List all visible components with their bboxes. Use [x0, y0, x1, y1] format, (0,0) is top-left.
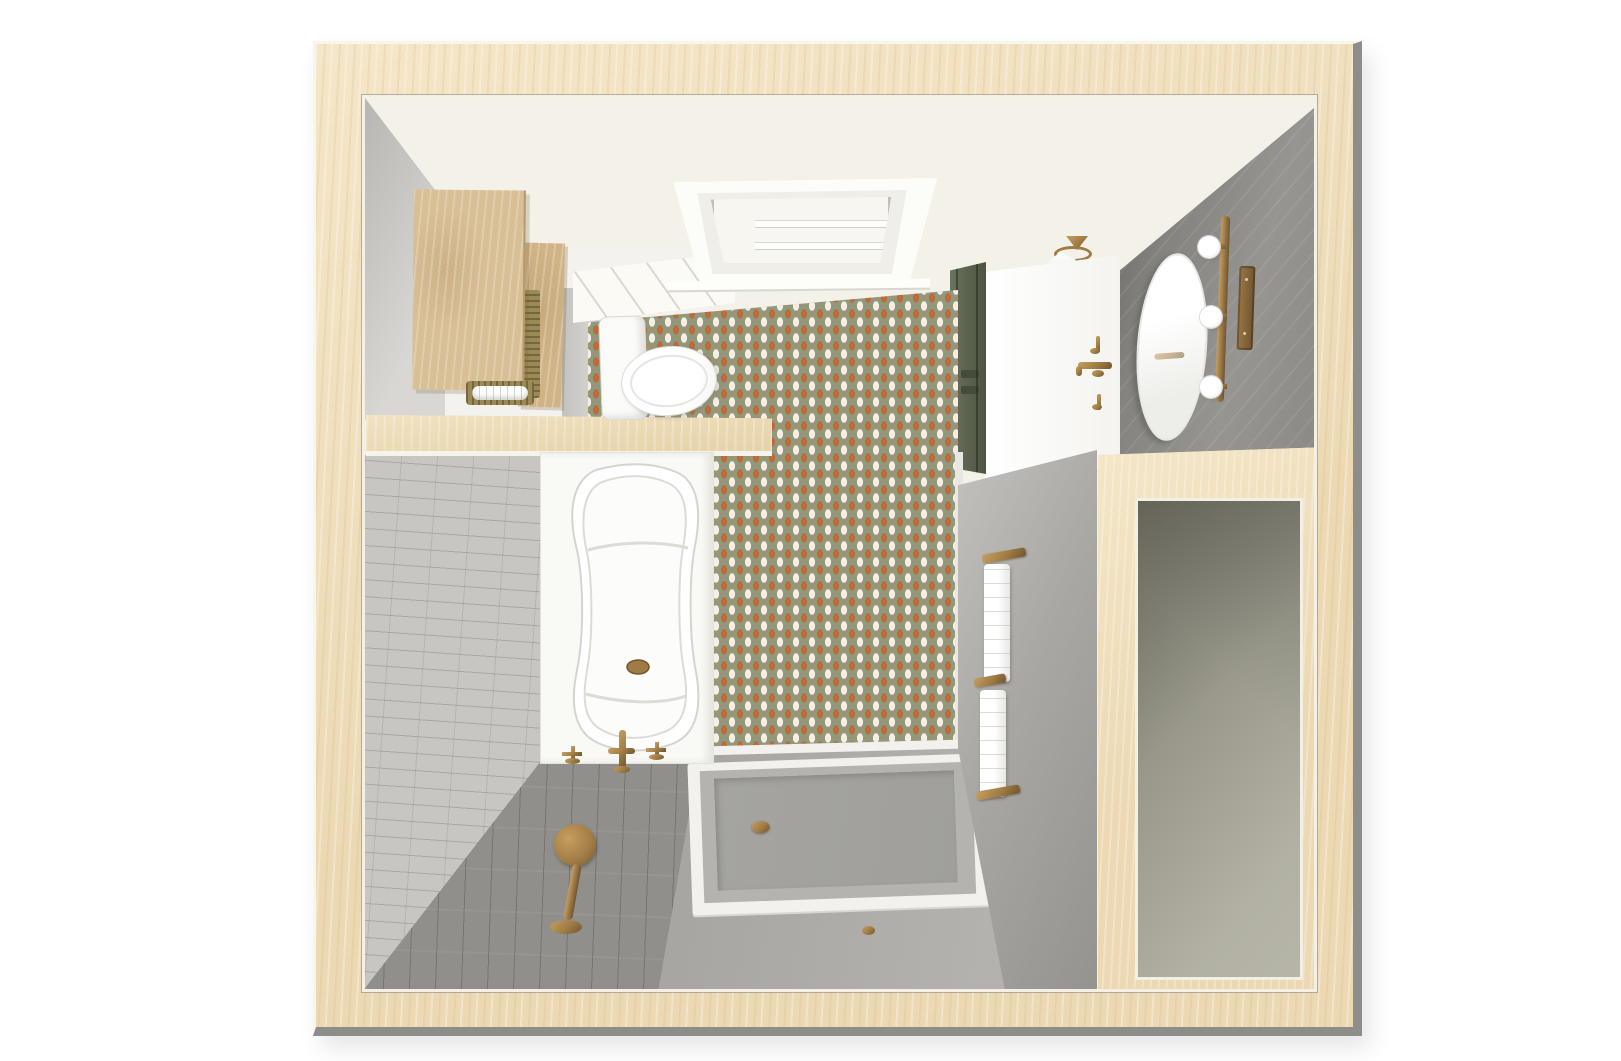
- vanity-faucet: [1076, 336, 1120, 422]
- faucet-escutcheon: [1092, 404, 1102, 410]
- faucet-escutcheon: [1090, 348, 1100, 354]
- tub-cross-handle: [562, 746, 584, 766]
- skylight: [665, 178, 940, 290]
- wall-cabinet-front: [412, 190, 526, 391]
- faucet-spout-tip: [1076, 366, 1082, 376]
- handle-bar: [562, 752, 582, 756]
- filler-base: [614, 766, 630, 773]
- rolled-towel: [472, 386, 528, 400]
- handle-base: [649, 754, 664, 760]
- handle-bar: [646, 748, 666, 752]
- plate-screw: [1245, 278, 1248, 281]
- vanity-light-bar: [1196, 214, 1258, 410]
- shower-pan: [687, 752, 1010, 915]
- bathtub: [560, 462, 710, 754]
- globe-bulb: [1200, 376, 1222, 398]
- hand-shower-base: [550, 920, 582, 934]
- floor-drain-icon: [862, 926, 875, 935]
- hand-shower-head: [554, 824, 596, 866]
- tub-cross-handle: [646, 742, 668, 762]
- bathroom-floorplan-render: [0, 0, 1621, 1061]
- faucet-spout-icon: [1078, 362, 1112, 369]
- hanging-towel: [984, 564, 1010, 682]
- shower-pan-recess: [714, 770, 958, 890]
- tub-filler-spout: [608, 730, 636, 776]
- bathroom-room: [362, 95, 1317, 992]
- pony-wall-cap: [366, 415, 772, 456]
- globe-bulb: [1198, 236, 1220, 258]
- faucet-escutcheon: [1092, 370, 1104, 377]
- filler-spout: [608, 748, 635, 754]
- mirror-reflection: [1154, 352, 1184, 360]
- hanging-towel: [980, 690, 1006, 797]
- toilet-seat: [627, 351, 710, 411]
- globe-bulb: [1200, 306, 1222, 328]
- shower-drain-icon: [752, 821, 770, 834]
- plate-screw: [1243, 332, 1246, 335]
- wood-divider: [1098, 444, 1317, 989]
- tub-drain-icon: [627, 660, 649, 674]
- door-hinge: [961, 386, 979, 394]
- handle-base: [565, 758, 580, 764]
- door-hinge: [961, 370, 979, 378]
- skylight-glass: [709, 197, 893, 263]
- switch-plate: [1237, 266, 1256, 351]
- skylight-sill: [668, 279, 930, 291]
- walk-in-closet: [1135, 498, 1303, 980]
